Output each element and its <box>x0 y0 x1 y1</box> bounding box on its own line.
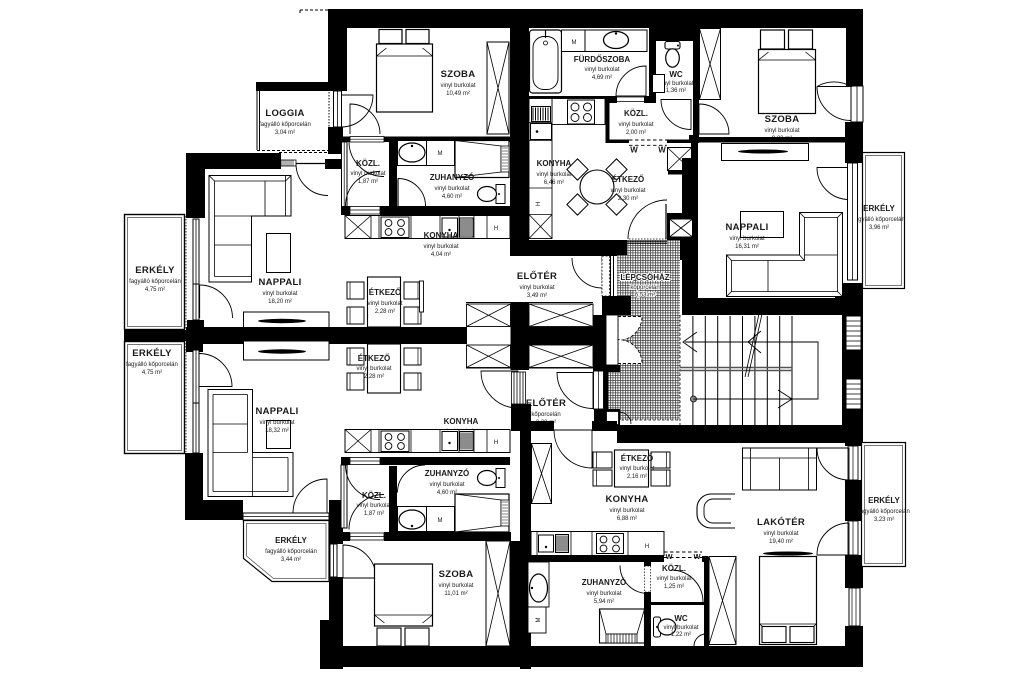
svg-text:vinyl burkolat: vinyl burkolat <box>434 186 469 192</box>
svg-text:vinyl burkolat: vinyl burkolat <box>729 236 764 242</box>
svg-text:fagyálló kőporcelán: fagyálló kőporcelán <box>259 122 311 128</box>
svg-text:18,20 m²: 18,20 m² <box>268 299 292 305</box>
svg-text:W: W <box>665 552 673 561</box>
svg-text:WC: WC <box>669 70 683 79</box>
svg-text:KÖZL.: KÖZL. <box>624 109 648 118</box>
svg-text:vinyl burkolat: vinyl burkolat <box>519 285 554 291</box>
svg-text:KONYHA: KONYHA <box>444 417 479 426</box>
svg-text:ERKÉLY: ERKÉLY <box>132 348 172 359</box>
svg-text:4,69 m²: 4,69 m² <box>592 75 612 81</box>
svg-text:H: H <box>494 440 498 446</box>
svg-text:vinyl burkolat: vinyl burkolat <box>618 122 653 128</box>
svg-text:ELŐTÉR: ELŐTÉR <box>517 270 557 282</box>
svg-text:NAPPALI: NAPPALI <box>255 406 298 417</box>
svg-text:vinyl burkolat: vinyl burkolat <box>438 583 473 589</box>
svg-text:18,32 m²: 18,32 m² <box>265 428 289 434</box>
svg-text:ERKÉLY: ERKÉLY <box>135 265 175 276</box>
svg-text:vinyl burkolat: vinyl burkolat <box>619 466 654 472</box>
svg-text:vinyl burkolat: vinyl burkolat <box>429 482 464 488</box>
svg-text:vinyl burkolat: vinyl burkolat <box>440 83 475 89</box>
svg-text:ERKÉLY: ERKÉLY <box>863 204 895 213</box>
svg-text:1,25 m²: 1,25 m² <box>664 584 684 590</box>
svg-text:fagyálló kőporcelán: fagyálló kőporcelán <box>126 362 178 368</box>
svg-text:ZUHANYZÓ: ZUHANYZÓ <box>430 173 474 182</box>
svg-text:W: W <box>658 146 666 155</box>
svg-text:NAPPALI: NAPPALI <box>258 277 301 288</box>
svg-text:16,31 m²: 16,31 m² <box>735 244 759 250</box>
svg-text:SZOBA: SZOBA <box>765 114 800 125</box>
svg-text:vinyl burkolat: vinyl burkolat <box>367 301 402 307</box>
svg-text:1,36 m²: 1,36 m² <box>666 88 686 94</box>
svg-text:vinyl burkolat: vinyl burkolat <box>610 188 645 194</box>
svg-text:W: W <box>630 146 638 155</box>
svg-text:1,22 m²: 1,22 m² <box>671 632 691 638</box>
svg-text:vinyl burkolat: vinyl burkolat <box>609 508 644 514</box>
svg-text:10,49 m²: 10,49 m² <box>446 91 470 97</box>
svg-text:2,30 m²: 2,30 m² <box>618 196 638 202</box>
svg-text:5,94 m²: 5,94 m² <box>594 599 614 605</box>
svg-text:LOGGIA: LOGGIA <box>265 108 304 119</box>
svg-text:LAKÓTÉR: LAKÓTÉR <box>757 516 805 528</box>
svg-text:vinyl burkolat: vinyl burkolat <box>262 291 297 297</box>
svg-text:M: M <box>536 618 542 623</box>
svg-text:H: H <box>536 202 542 206</box>
svg-text:M: M <box>438 151 443 157</box>
svg-text:2,16 m²: 2,16 m² <box>627 474 647 480</box>
svg-text:KONYHA: KONYHA <box>424 231 459 240</box>
svg-text:LÉPCSŐHÁZ: LÉPCSŐHÁZ <box>620 273 669 282</box>
svg-text:vinyl burkolat: vinyl burkolat <box>259 420 294 426</box>
svg-text:4,60 m²: 4,60 m² <box>442 194 462 200</box>
svg-text:vinyl burkolat: vinyl burkolat <box>763 531 798 537</box>
svg-text:vinyl burkolat: vinyl burkolat <box>356 503 391 509</box>
svg-text:3,96 m²: 3,96 m² <box>869 225 889 231</box>
svg-text:fagyálló kőporcelán: fagyálló kőporcelán <box>858 509 910 515</box>
svg-text:vinyl burkolat: vinyl burkolat <box>536 172 571 178</box>
svg-text:fagyálló kőporcelán: fagyálló kőporcelán <box>265 549 317 555</box>
svg-text:2,28 m²: 2,28 m² <box>364 374 384 380</box>
svg-text:6,46 m²: 6,46 m² <box>544 180 564 186</box>
svg-text:H: H <box>645 544 649 550</box>
svg-text:KONYHA: KONYHA <box>537 159 572 168</box>
svg-text:M: M <box>572 40 577 46</box>
svg-text:FÜRDŐSZOBA: FÜRDŐSZOBA <box>574 55 631 64</box>
svg-text:ÉTKEZŐ: ÉTKEZŐ <box>612 175 644 184</box>
svg-text:KONYHA: KONYHA <box>606 494 649 505</box>
svg-text:SZOBA: SZOBA <box>441 69 476 80</box>
svg-text:1,87 m²: 1,87 m² <box>364 511 384 517</box>
svg-text:vinyl burkolat: vinyl burkolat <box>663 625 698 631</box>
svg-text:6,53 m²: 6,53 m² <box>635 293 655 299</box>
svg-text:3,49 m²: 3,49 m² <box>527 293 547 299</box>
svg-text:3,04 m²: 3,04 m² <box>275 130 295 136</box>
svg-text:4,60 m²: 4,60 m² <box>437 490 457 496</box>
svg-text:M: M <box>438 518 443 524</box>
svg-text:11,01 m²: 11,01 m² <box>444 591 467 597</box>
svg-text:vinyl burkolat: vinyl burkolat <box>764 128 799 134</box>
svg-text:H: H <box>494 226 498 232</box>
svg-text:NAPPALI: NAPPALI <box>725 222 768 233</box>
svg-text:fagyálló kőporcelán: fagyálló kőporcelán <box>853 217 905 223</box>
svg-text:vinyl burkolat: vinyl burkolat <box>423 244 458 250</box>
svg-text:19,40 m²: 19,40 m² <box>769 539 793 545</box>
svg-text:ZUHANYZÓ: ZUHANYZÓ <box>425 469 469 478</box>
svg-text:ÉTKEZŐ: ÉTKEZŐ <box>621 454 653 463</box>
svg-text:W: W <box>693 552 701 561</box>
svg-text:kőporcelán: kőporcelán <box>531 412 560 418</box>
svg-text:ZUHANYZÓ: ZUHANYZÓ <box>582 578 626 587</box>
svg-text:4,75 m²: 4,75 m² <box>142 370 162 376</box>
svg-text:ÉTKEZŐ: ÉTKEZŐ <box>358 354 390 363</box>
svg-text:4,75 m²: 4,75 m² <box>145 287 165 293</box>
svg-text:6,88 m²: 6,88 m² <box>617 516 637 522</box>
svg-text:WC: WC <box>674 614 688 623</box>
svg-text:kőporcelán: kőporcelán <box>630 285 659 291</box>
svg-text:fagyálló kőporcelán: fagyálló kőporcelán <box>129 279 181 285</box>
svg-text:3,23 m²: 3,23 m² <box>874 517 894 523</box>
svg-text:4,04 m²: 4,04 m² <box>431 252 451 258</box>
svg-text:ÉTKEZŐ: ÉTKEZŐ <box>369 288 401 297</box>
svg-text:2,28 m²: 2,28 m² <box>375 309 395 315</box>
svg-text:vinyl burkolat: vinyl burkolat <box>586 591 621 597</box>
svg-text:ERKÉLY: ERKÉLY <box>868 496 900 505</box>
svg-text:3,44 m²: 3,44 m² <box>281 557 301 563</box>
svg-text:SZOBA: SZOBA <box>439 569 474 580</box>
svg-text:ERKÉLY: ERKÉLY <box>275 536 307 545</box>
svg-text:ELŐTÉR: ELŐTÉR <box>526 397 566 409</box>
svg-text:2,00 m²: 2,00 m² <box>626 130 646 136</box>
svg-text:1,87 m²: 1,87 m² <box>358 179 378 185</box>
svg-text:vinyl burkolat: vinyl burkolat <box>656 576 691 582</box>
svg-text:vinyl burkolat: vinyl burkolat <box>356 366 391 372</box>
svg-text:vinyl burkolat: vinyl burkolat <box>584 67 619 73</box>
